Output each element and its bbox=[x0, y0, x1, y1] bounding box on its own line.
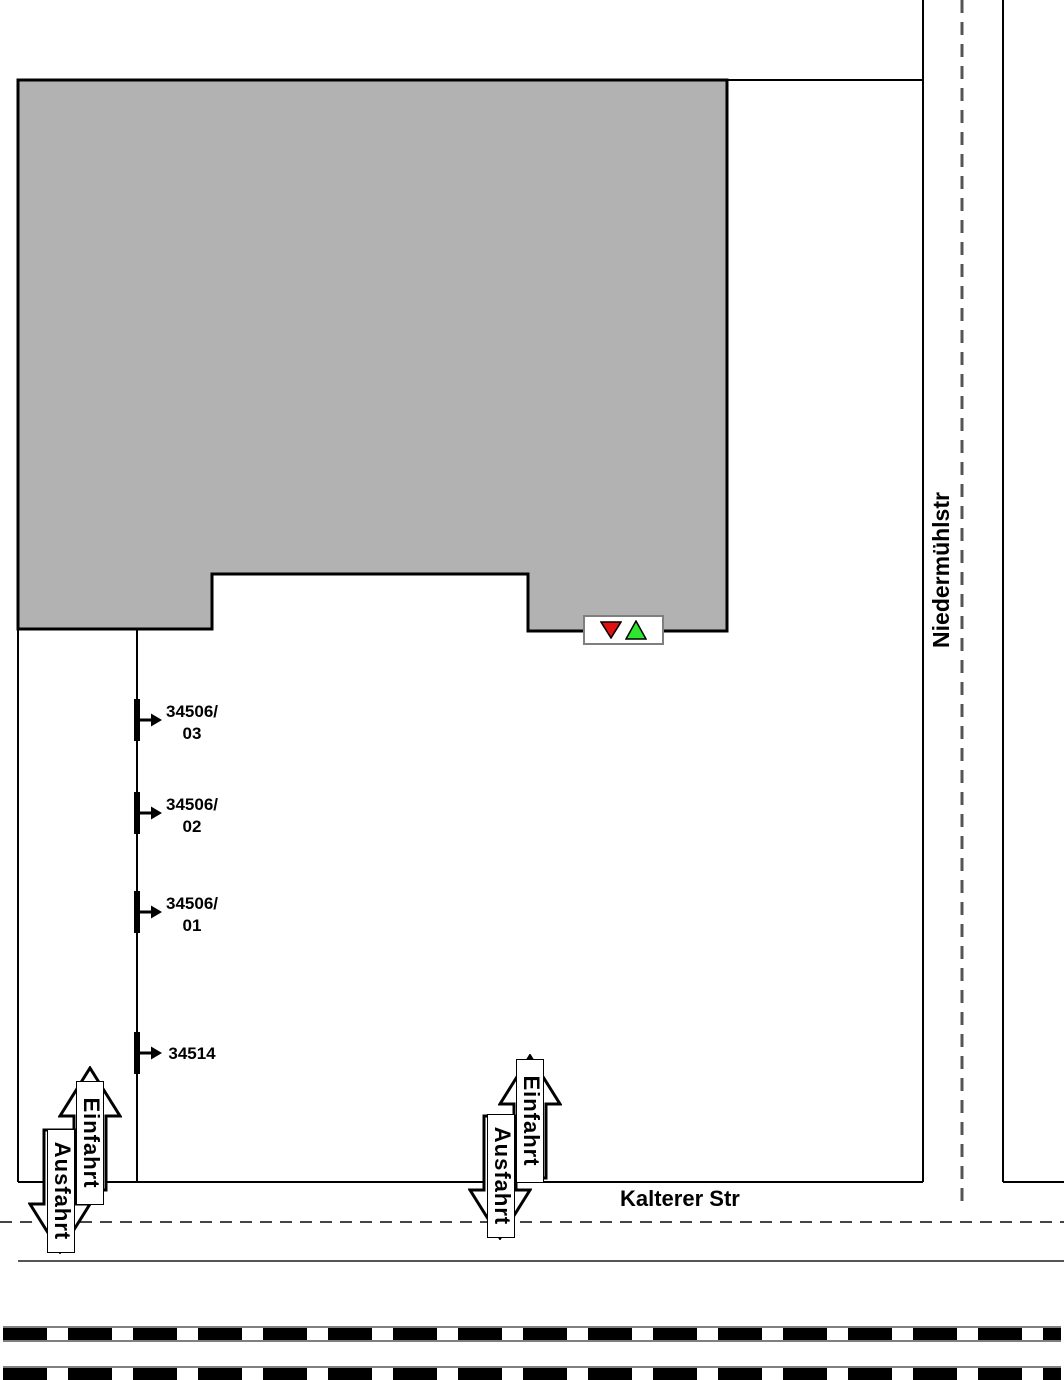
gate-id-line1: 34514 bbox=[156, 1043, 228, 1065]
exit-label-center: Ausfahrt bbox=[487, 1114, 515, 1238]
red-down-triangle-icon bbox=[600, 621, 622, 639]
gate-id-line1: 34506/ bbox=[156, 893, 228, 915]
street-name-horizontal: Kalterer Str bbox=[620, 1186, 740, 1212]
gate-id: 34514 bbox=[156, 1043, 228, 1065]
entrance-label-center: Einfahrt bbox=[516, 1059, 544, 1183]
gate-id-line2: 01 bbox=[156, 915, 228, 937]
gate-id: 34506/ 03 bbox=[156, 701, 228, 745]
gate-id-line2: 02 bbox=[156, 816, 228, 838]
gate-id-line2: 03 bbox=[156, 723, 228, 745]
site-plan: Einfahrt Ausfahrt Einfahrt Ausfahrt 3450… bbox=[0, 0, 1064, 1380]
gate-id-line1: 34506/ bbox=[156, 701, 228, 723]
railway-track bbox=[3, 1366, 1061, 1380]
entrance-label-left: Einfahrt bbox=[76, 1081, 104, 1205]
gate-id: 34506/ 02 bbox=[156, 794, 228, 838]
green-up-triangle-icon bbox=[625, 620, 647, 640]
gate-id: 34506/ 01 bbox=[156, 893, 228, 937]
gate-id-line1: 34506/ bbox=[156, 794, 228, 816]
railway-track bbox=[3, 1326, 1061, 1342]
building-footprint bbox=[18, 80, 727, 631]
exit-label-left: Ausfahrt bbox=[47, 1129, 75, 1253]
signal-box bbox=[583, 615, 664, 645]
street-name-vertical: Niedermühlstr bbox=[928, 480, 954, 660]
